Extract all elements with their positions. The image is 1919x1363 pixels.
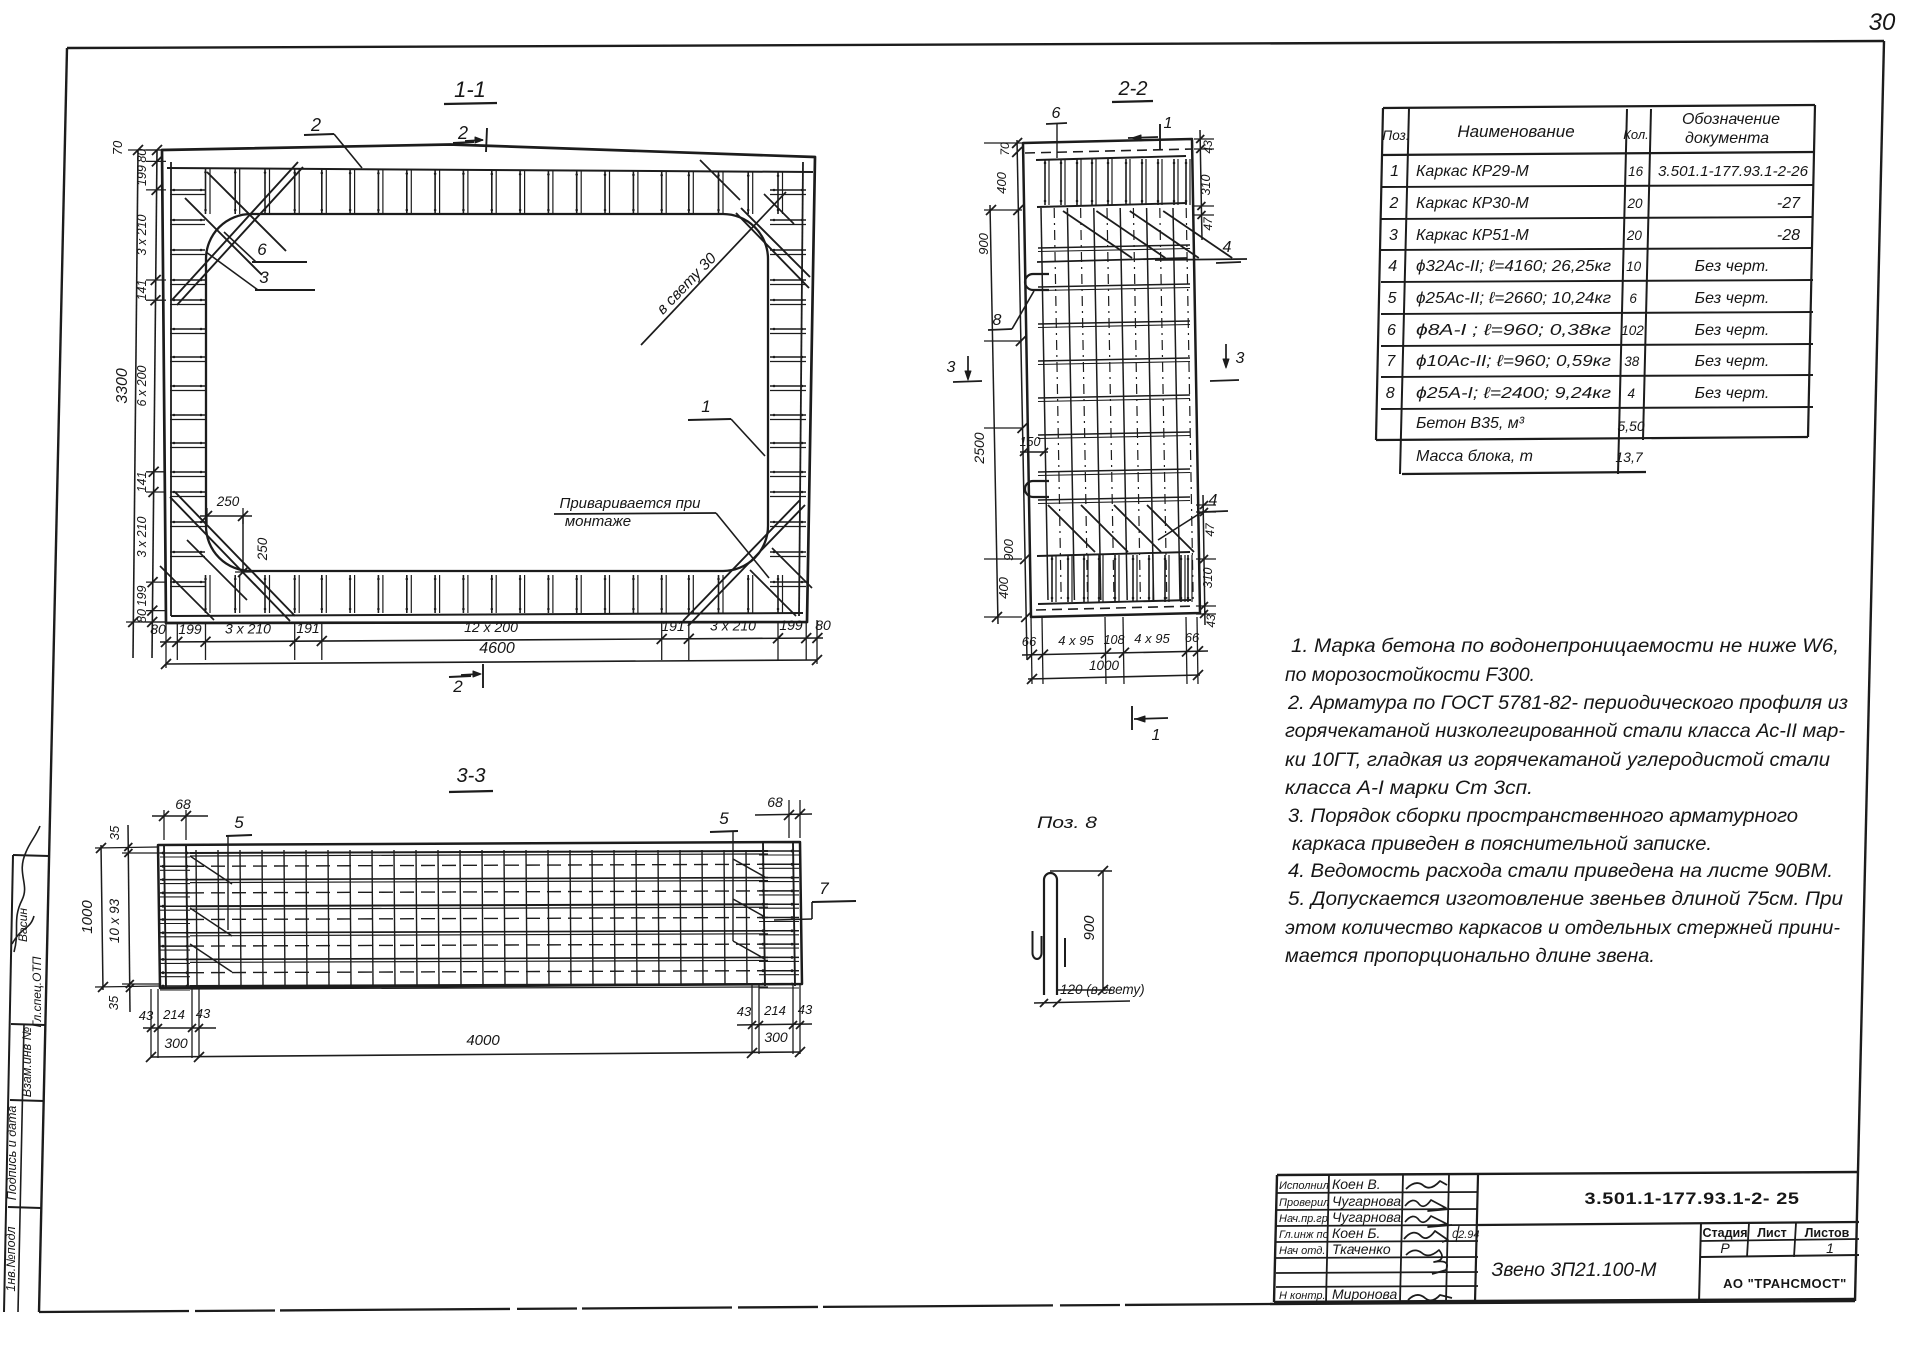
svg-text:47: 47 xyxy=(1201,216,1215,231)
svg-text:Гл.инж по: Гл.инж по xyxy=(1279,1229,1329,1241)
svg-text:43: 43 xyxy=(1201,140,1215,154)
svg-text:38: 38 xyxy=(1624,354,1640,369)
svg-text:3. Порядок сборки пространс: 3. Порядок сборки пространственного арма… xyxy=(1288,806,1798,827)
svg-text:ϕ32Ас-II; ℓ=4160; 26,25кг: ϕ32Ас-II; ℓ=4160; 26,25кг xyxy=(1416,258,1611,275)
svg-text:ϕ25А-I; ℓ=2400; 9,24кг: ϕ25А-I; ℓ=2400; 9,24кг xyxy=(1416,385,1611,402)
svg-text:документа: документа xyxy=(1685,130,1769,147)
svg-text:66: 66 xyxy=(1022,634,1037,649)
svg-text:каркаса приведен в пояснител: каркаса приведен в пояснительной записке… xyxy=(1292,834,1712,855)
svg-text:Чугарнова: Чугарнова xyxy=(1332,1193,1401,1209)
svg-text:Гл.спец.ОТП: Гл.спец.ОТП xyxy=(30,956,44,1027)
svg-text:-28: -28 xyxy=(1777,227,1800,244)
svg-text:5: 5 xyxy=(1388,290,1397,307)
svg-text:Р: Р xyxy=(1720,1240,1730,1256)
svg-text:Приваривается при: Приваривается при xyxy=(559,495,701,512)
svg-text:3-3: 3-3 xyxy=(457,765,486,787)
svg-text:43: 43 xyxy=(139,1008,154,1023)
svg-text:Без черт.: Без черт. xyxy=(1695,290,1770,307)
svg-text:43: 43 xyxy=(196,1006,211,1021)
svg-text:ϕ25Ас-II; ℓ=2660; 10,24кг: ϕ25Ас-II; ℓ=2660; 10,24кг xyxy=(1416,290,1611,307)
svg-text:Нач отд.: Нач отд. xyxy=(1279,1245,1325,1257)
svg-text:35: 35 xyxy=(106,995,121,1010)
svg-text:4. Ведомость расхода стали при: 4. Ведомость расхода стали приведена на … xyxy=(1288,861,1833,882)
svg-text:мается пропорционально длине: мается пропорционально длине звена. xyxy=(1285,946,1655,967)
svg-text:5. Допускается изготовление: 5. Допускается изготовление звеньев длин… xyxy=(1288,889,1843,910)
svg-text:3300: 3300 xyxy=(114,368,131,404)
svg-text:70: 70 xyxy=(998,142,1012,156)
svg-text:2: 2 xyxy=(452,677,463,696)
svg-text:68: 68 xyxy=(175,796,191,812)
svg-text:Чугарнова: Чугарнова xyxy=(1332,1209,1401,1225)
svg-text:3 x 210: 3 x 210 xyxy=(135,516,149,557)
svg-text:66: 66 xyxy=(1185,630,1200,645)
svg-text:Коен Б.: Коен Б. xyxy=(1332,1225,1380,1241)
svg-text:900: 900 xyxy=(1081,915,1098,941)
svg-text:214: 214 xyxy=(162,1007,185,1022)
svg-text:Без черт.: Без черт. xyxy=(1695,322,1770,339)
svg-text:400: 400 xyxy=(994,171,1009,193)
svg-text:43: 43 xyxy=(1204,614,1218,628)
svg-text:30: 30 xyxy=(1869,9,1896,36)
svg-text:класса А-I марки Ст 3сп.: класса А-I марки Ст 3сп. xyxy=(1285,778,1533,799)
svg-text:Бетон В35, м³: Бетон В35, м³ xyxy=(1416,415,1525,432)
svg-text:20: 20 xyxy=(1626,228,1643,243)
svg-text:Без черт.: Без черт. xyxy=(1695,353,1770,370)
svg-text:13,7: 13,7 xyxy=(1615,449,1643,465)
svg-text:Лист: Лист xyxy=(1757,1226,1787,1240)
svg-text:12 x 200: 12 x 200 xyxy=(464,619,518,635)
svg-text:43: 43 xyxy=(737,1004,752,1019)
svg-text:4000: 4000 xyxy=(466,1032,500,1049)
svg-text:10: 10 xyxy=(1626,259,1642,274)
svg-text:141: 141 xyxy=(135,280,149,301)
svg-text:Масса блока, т: Масса блока, т xyxy=(1416,448,1533,465)
svg-text:Нач.пр.гр: Нач.пр.гр xyxy=(1279,1213,1328,1225)
svg-text:80: 80 xyxy=(135,609,149,623)
svg-text:3 x 210: 3 x 210 xyxy=(135,214,149,255)
svg-text:Без черт.: Без черт. xyxy=(1695,258,1770,275)
svg-text:6: 6 xyxy=(257,240,267,259)
svg-text:214: 214 xyxy=(763,1003,786,1018)
svg-text:6 x 200: 6 x 200 xyxy=(135,365,149,406)
svg-text:900: 900 xyxy=(976,232,991,254)
svg-text:2: 2 xyxy=(1389,195,1399,212)
svg-text:5,50: 5,50 xyxy=(1617,418,1644,434)
svg-text:ϕ10Ас-II; ℓ=960; 0,59кг: ϕ10Ас-II; ℓ=960; 0,59кг xyxy=(1416,353,1611,370)
svg-text:20: 20 xyxy=(1626,196,1643,211)
svg-text:Звено 3П21.100-М: Звено 3П21.100-М xyxy=(1492,1260,1657,1281)
svg-text:35: 35 xyxy=(107,825,122,840)
svg-text:Стадия: Стадия xyxy=(1702,1226,1747,1240)
svg-text:1: 1 xyxy=(1152,727,1161,744)
svg-text:80: 80 xyxy=(135,149,149,163)
svg-text:1: 1 xyxy=(701,397,710,416)
svg-text:10 x 93: 10 x 93 xyxy=(107,898,122,943)
svg-text:199: 199 xyxy=(135,586,149,607)
svg-text:400: 400 xyxy=(996,576,1011,598)
svg-text:4600: 4600 xyxy=(479,640,515,657)
svg-text:3 x 210: 3 x 210 xyxy=(710,618,756,634)
svg-text:Кол.: Кол. xyxy=(1623,127,1649,142)
svg-text:-27: -27 xyxy=(1777,195,1801,212)
svg-text:120 (в свету): 120 (в свету) xyxy=(1060,982,1145,997)
svg-text:8: 8 xyxy=(1386,385,1395,402)
svg-text:горячекатаной низколегированно: горячекатаной низколегированной стали кл… xyxy=(1285,721,1845,742)
svg-text:16: 16 xyxy=(1628,164,1644,179)
svg-text:900: 900 xyxy=(1001,538,1016,560)
svg-text:Обозначение: Обозначение xyxy=(1682,111,1780,128)
svg-text:191: 191 xyxy=(661,618,684,634)
svg-text:Каркас КР51-М: Каркас КР51-М xyxy=(1416,227,1529,244)
svg-text:7: 7 xyxy=(1386,353,1396,370)
svg-text:70: 70 xyxy=(110,140,125,155)
svg-text:этом количество каркасов и: этом количество каркасов и отдельных сте… xyxy=(1285,918,1840,939)
svg-text:191: 191 xyxy=(296,620,319,636)
svg-text:8: 8 xyxy=(993,312,1002,329)
svg-text:4 x 95: 4 x 95 xyxy=(1058,633,1094,648)
svg-text:141: 141 xyxy=(135,472,149,493)
svg-text:102: 102 xyxy=(1621,323,1644,338)
svg-text:Подпись и дата: Подпись и дата xyxy=(5,1106,19,1201)
svg-text:300: 300 xyxy=(164,1035,188,1051)
svg-text:ϕ8А-I ; ℓ=960; 0,38кг: ϕ8А-I ; ℓ=960; 0,38кг xyxy=(1416,322,1611,339)
svg-text:7: 7 xyxy=(819,879,829,898)
svg-text:310: 310 xyxy=(1201,568,1215,589)
svg-text:Поз.: Поз. xyxy=(1382,128,1409,143)
svg-text:199: 199 xyxy=(779,617,803,633)
svg-text:4: 4 xyxy=(1388,258,1397,275)
svg-text:3 x 210: 3 x 210 xyxy=(225,621,271,637)
svg-text:Миронова: Миронова xyxy=(1332,1286,1398,1302)
svg-text:Поз. 8: Поз. 8 xyxy=(1037,814,1098,832)
svg-text:Без черт.: Без черт. xyxy=(1695,385,1770,402)
svg-text:47: 47 xyxy=(1203,522,1217,537)
svg-text:АО "ТРАНСМОСТ": АО "ТРАНСМОСТ" xyxy=(1723,1276,1847,1291)
svg-text:310: 310 xyxy=(1199,175,1213,196)
svg-text:3: 3 xyxy=(1236,350,1245,367)
svg-text:250: 250 xyxy=(255,537,270,561)
svg-text:6: 6 xyxy=(1052,105,1061,122)
svg-text:250: 250 xyxy=(216,494,240,509)
svg-text:1-1: 1-1 xyxy=(454,77,486,102)
svg-text:1000: 1000 xyxy=(79,900,96,934)
svg-text:1: 1 xyxy=(1826,1240,1834,1256)
svg-text:6: 6 xyxy=(1387,322,1396,339)
svg-text:2. Арматура по ГОСТ 5781-82-: 2. Арматура по ГОСТ 5781-82- периодическ… xyxy=(1287,693,1848,714)
svg-text:199: 199 xyxy=(135,165,149,186)
svg-text:5: 5 xyxy=(234,813,244,832)
svg-text:108: 108 xyxy=(1104,633,1125,647)
svg-text:Проверил: Проверил xyxy=(1279,1197,1329,1209)
svg-text:2500: 2500 xyxy=(971,432,987,464)
svg-text:4: 4 xyxy=(1223,239,1232,256)
svg-text:Ткаченко: Ткаченко xyxy=(1332,1241,1391,1257)
svg-text:43: 43 xyxy=(798,1002,813,1017)
svg-text:ки 10ГТ, гладкая из горячеката: ки 10ГТ, гладкая из горячекатаной углеро… xyxy=(1285,750,1830,771)
svg-text:Каркас КР30-М: Каркас КР30-М xyxy=(1416,195,1529,212)
svg-text:Коен В.: Коен В. xyxy=(1332,1176,1381,1192)
svg-text:6: 6 xyxy=(1629,291,1637,306)
svg-text:2: 2 xyxy=(457,123,468,143)
svg-text:3: 3 xyxy=(1389,227,1398,244)
svg-text:4: 4 xyxy=(1209,492,1218,509)
svg-text:68: 68 xyxy=(767,794,783,810)
svg-text:199: 199 xyxy=(178,621,202,637)
svg-text:3.501.1-177.93.1-2- 25: 3.501.1-177.93.1-2- 25 xyxy=(1585,1189,1800,1208)
svg-text:2: 2 xyxy=(310,115,321,135)
svg-text:Исполнил: Исполнил xyxy=(1279,1180,1329,1192)
svg-text:02.94: 02.94 xyxy=(1452,1229,1480,1241)
svg-text:1. Марка бетона по водонепро: 1. Марка бетона по водонепроницаемости н… xyxy=(1291,636,1839,657)
svg-text:5: 5 xyxy=(719,809,729,828)
svg-text:по морозостойкости F300.: по морозостойкости F300. xyxy=(1285,665,1535,686)
svg-text:4: 4 xyxy=(1627,386,1635,401)
svg-text:3: 3 xyxy=(947,359,956,376)
svg-text:Н контр.: Н контр. xyxy=(1279,1290,1326,1302)
svg-text:2-2: 2-2 xyxy=(1118,78,1148,100)
svg-text:Каркас КР29-М: Каркас КР29-М xyxy=(1416,163,1529,180)
svg-text:4 x 95: 4 x 95 xyxy=(1134,631,1170,646)
svg-text:1нв.№подл: 1нв.№подл xyxy=(4,1226,18,1291)
svg-text:80: 80 xyxy=(815,617,831,633)
svg-text:80: 80 xyxy=(150,621,166,637)
svg-text:Взам.инв №: Взам.инв № xyxy=(20,1026,34,1097)
svg-text:Листов: Листов xyxy=(1805,1226,1850,1240)
svg-text:1: 1 xyxy=(1390,163,1399,180)
svg-text:300: 300 xyxy=(764,1029,788,1045)
svg-text:Наименование: Наименование xyxy=(1457,122,1574,141)
svg-text:1: 1 xyxy=(1164,115,1173,132)
svg-text:3: 3 xyxy=(259,268,269,287)
svg-text:3.501.1-177.93.1-2-26: 3.501.1-177.93.1-2-26 xyxy=(1658,163,1809,180)
svg-text:1000: 1000 xyxy=(1089,658,1120,673)
svg-text:монтаже: монтаже xyxy=(565,513,631,530)
